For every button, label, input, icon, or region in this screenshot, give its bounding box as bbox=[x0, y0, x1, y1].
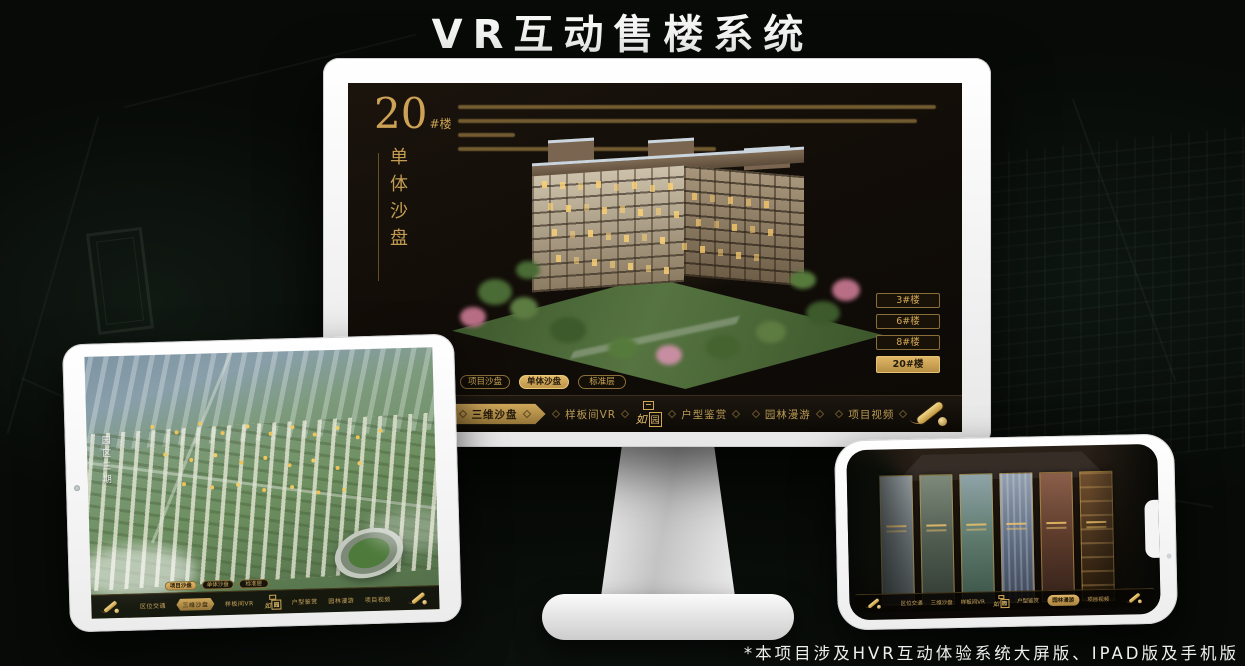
building-button-8[interactable]: 8#楼 bbox=[876, 335, 940, 350]
subtab-project-sandtable[interactable]: 项目沙盘 bbox=[165, 581, 197, 591]
tree bbox=[806, 301, 840, 325]
description-line bbox=[458, 119, 917, 123]
building-button-3[interactable]: 3#楼 bbox=[876, 293, 940, 308]
nav-item-project-video[interactable]: 项目视频 bbox=[830, 407, 912, 422]
scroll-end bbox=[877, 605, 881, 609]
nav-item-floorplan-appreciation[interactable]: 户型鉴赏 bbox=[292, 596, 318, 606]
phone-notch bbox=[1144, 500, 1160, 558]
scroll-menu-icon[interactable] bbox=[867, 598, 882, 610]
building-3d-model[interactable] bbox=[420, 129, 906, 397]
nav-item-garden-tour[interactable]: 园林漫游 bbox=[1047, 594, 1079, 606]
subtab-single-sandtable[interactable]: 单体沙盘 bbox=[519, 375, 569, 389]
scroll-menu-icon[interactable] bbox=[410, 591, 428, 605]
logo-char-left: 如 bbox=[993, 599, 999, 608]
phone-device: 区位交通 三维沙盘 样板间VR 如园 户型鉴赏 园林漫游 项目视频 bbox=[834, 433, 1178, 630]
stage: VR互动售楼系统 20#楼 单体沙盘 bbox=[0, 0, 1245, 666]
ruyuan-logo[interactable]: 如园 bbox=[264, 595, 281, 610]
building-facade-left bbox=[532, 166, 684, 293]
tree bbox=[608, 337, 638, 359]
nav-item-project-video[interactable]: 项目视频 bbox=[1087, 595, 1109, 603]
ruyuan-logo[interactable]: 如园 bbox=[993, 594, 1009, 607]
tree bbox=[478, 279, 512, 305]
background-certificate-frame bbox=[86, 227, 154, 335]
phone-screen: 区位交通 三维沙盘 样板间VR 如园 户型鉴赏 园林漫游 项目视频 bbox=[846, 444, 1160, 620]
subtab-standard-floor[interactable]: 标准层 bbox=[239, 579, 269, 589]
flower-tree bbox=[460, 307, 486, 327]
nav-item-location-traffic[interactable]: 区位交通 bbox=[900, 599, 922, 607]
flower-tree bbox=[832, 279, 860, 301]
nav-item-3d-sandtable[interactable]: 三维沙盘 bbox=[176, 597, 214, 611]
scene-card[interactable] bbox=[959, 473, 995, 604]
tree bbox=[790, 271, 816, 289]
scroll-end bbox=[1138, 599, 1142, 603]
heading-vertical-label: 单体沙盘 bbox=[384, 147, 410, 255]
subtab-single-sandtable[interactable]: 单体沙盘 bbox=[202, 580, 234, 590]
background-building-texture bbox=[990, 127, 1245, 474]
nav-item-model-room-vr[interactable]: 样板间VR bbox=[225, 598, 254, 608]
nav-item-model-room-vr[interactable]: 样板间VR bbox=[961, 597, 985, 606]
scroll-end bbox=[114, 608, 119, 613]
description-line bbox=[458, 105, 936, 109]
nav-item-3d-sandtable[interactable]: 三维沙盘 bbox=[444, 403, 546, 426]
nav-item-garden-tour[interactable]: 园林漫游 bbox=[328, 595, 354, 605]
tree bbox=[550, 317, 586, 343]
tablet-screen: 园区三期 项目沙盘 单体沙盘 标准层 区位交通 三维沙盘 样板间VR 如园 户型… bbox=[84, 347, 439, 619]
heading-divider bbox=[378, 153, 379, 281]
tablet-device: 园区三期 项目沙盘 单体沙盘 标准层 区位交通 三维沙盘 样板间VR 如园 户型… bbox=[62, 334, 462, 633]
nav-item-garden-tour[interactable]: 园林漫游 bbox=[747, 407, 829, 422]
nav-item-floorplan-appreciation[interactable]: 户型鉴赏 bbox=[663, 407, 745, 422]
scroll-menu-icon[interactable] bbox=[1128, 592, 1143, 604]
scroll-end bbox=[422, 599, 427, 604]
nav-item-model-room-vr[interactable]: 样板间VR bbox=[547, 407, 634, 422]
building-selector: 3#楼 6#楼 8#楼 20#楼 bbox=[876, 293, 940, 373]
nav-item-3d-sandtable[interactable]: 三维沙盘 bbox=[931, 598, 953, 606]
seal-icon bbox=[643, 401, 654, 410]
ruyuan-logo[interactable]: 如园 bbox=[636, 401, 662, 427]
page-title: VR互动售楼系统 bbox=[0, 2, 1245, 60]
nav-item-location-traffic[interactable]: 区位交通 bbox=[140, 601, 166, 611]
logo-char-right: 园 bbox=[1000, 598, 1009, 607]
tablet-camera-icon bbox=[74, 485, 80, 491]
scroll-menu-icon[interactable] bbox=[102, 600, 120, 614]
nav-item-floorplan-appreciation[interactable]: 户型鉴赏 bbox=[1017, 596, 1039, 604]
lit-windows bbox=[542, 181, 547, 188]
scene-card[interactable] bbox=[1039, 472, 1075, 603]
phone-camera-icon bbox=[1166, 553, 1171, 558]
subtab-project-sandtable[interactable]: 项目沙盘 bbox=[460, 375, 510, 389]
building-model bbox=[532, 145, 808, 297]
footnote-text: *本项目涉及HVR互动体验系统大屏版、IPAD版及手机版 bbox=[744, 640, 1239, 664]
tree bbox=[706, 335, 740, 359]
subtab-standard-floor[interactable]: 标准层 bbox=[578, 375, 626, 389]
building-facade-right bbox=[684, 166, 804, 286]
scroll-end bbox=[938, 417, 947, 426]
tablet-subtabs: 项目沙盘 单体沙盘 标准层 bbox=[165, 579, 269, 591]
tree bbox=[510, 297, 538, 319]
area-label: 园区三期 bbox=[99, 435, 113, 487]
scene-card[interactable] bbox=[919, 474, 955, 605]
logo-char-left: 如 bbox=[264, 600, 271, 610]
monitor-stand-base bbox=[542, 594, 794, 640]
monitor-stand-neck bbox=[598, 446, 738, 598]
scroll-menu-icon[interactable] bbox=[914, 400, 950, 428]
tree bbox=[516, 261, 540, 279]
building-button-20[interactable]: 20#楼 bbox=[876, 356, 940, 373]
flower-tree bbox=[656, 345, 682, 365]
roof-cap bbox=[548, 138, 594, 163]
monitor-subtabs: 项目沙盘 单体沙盘 标准层 bbox=[460, 375, 626, 389]
scene-card[interactable] bbox=[999, 472, 1035, 603]
nav-item-project-video[interactable]: 项目视频 bbox=[365, 594, 391, 604]
tree bbox=[756, 321, 786, 343]
logo-char-right: 园 bbox=[649, 412, 662, 427]
logo-char-left: 如 bbox=[636, 411, 647, 427]
logo-char-right: 园 bbox=[272, 600, 282, 610]
building-button-6[interactable]: 6#楼 bbox=[876, 314, 940, 329]
